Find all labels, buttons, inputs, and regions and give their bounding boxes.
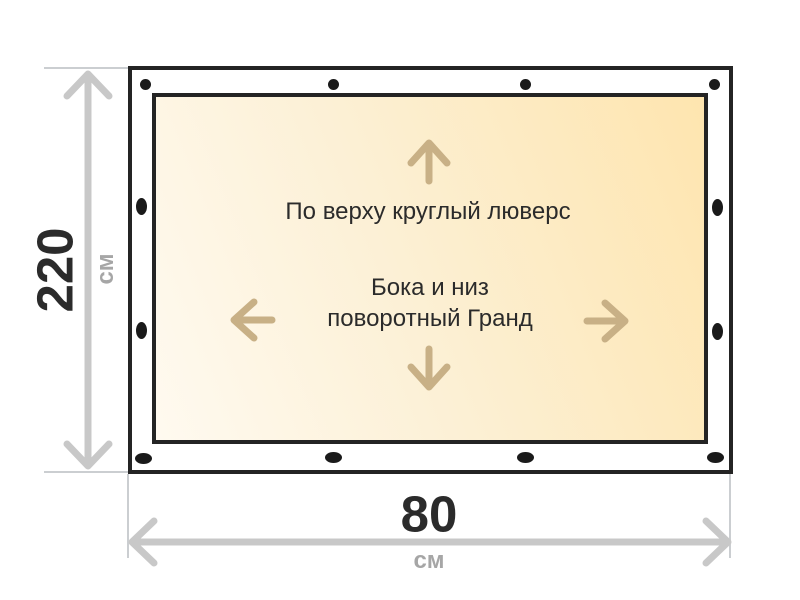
oval-swivel-grommet-icon bbox=[325, 452, 342, 463]
side-attachment-label-line1: Бока и низ bbox=[327, 272, 533, 303]
arrow-left-icon bbox=[228, 297, 276, 343]
round-grommet-icon bbox=[709, 79, 720, 90]
arrow-down-icon bbox=[406, 345, 452, 393]
width-value: 80 bbox=[401, 485, 458, 544]
round-grommet-icon bbox=[520, 79, 531, 90]
oval-swivel-grommet-icon bbox=[707, 452, 724, 463]
oval-swivel-grommet-icon bbox=[712, 323, 723, 340]
round-grommet-icon bbox=[140, 79, 151, 90]
arrow-up-icon bbox=[406, 137, 452, 185]
top-attachment-label: По верху круглый люверс bbox=[285, 198, 570, 226]
height-unit: см bbox=[92, 253, 120, 284]
banner-size-diagram: 220 см 80 см По верху круглый люверс Бок… bbox=[0, 0, 800, 600]
oval-swivel-grommet-icon bbox=[712, 199, 723, 216]
round-grommet-icon bbox=[328, 79, 339, 90]
side-attachment-label-line2: поворотный Гранд bbox=[327, 303, 533, 334]
oval-swivel-grommet-icon bbox=[135, 453, 152, 464]
side-attachment-label: Бока и низ поворотный Гранд bbox=[327, 272, 533, 334]
oval-swivel-grommet-icon bbox=[517, 452, 534, 463]
width-unit: см bbox=[413, 547, 444, 575]
arrow-right-icon bbox=[583, 298, 631, 344]
oval-swivel-grommet-icon bbox=[136, 198, 147, 215]
oval-swivel-grommet-icon bbox=[136, 322, 147, 339]
height-value: 220 bbox=[26, 227, 85, 312]
